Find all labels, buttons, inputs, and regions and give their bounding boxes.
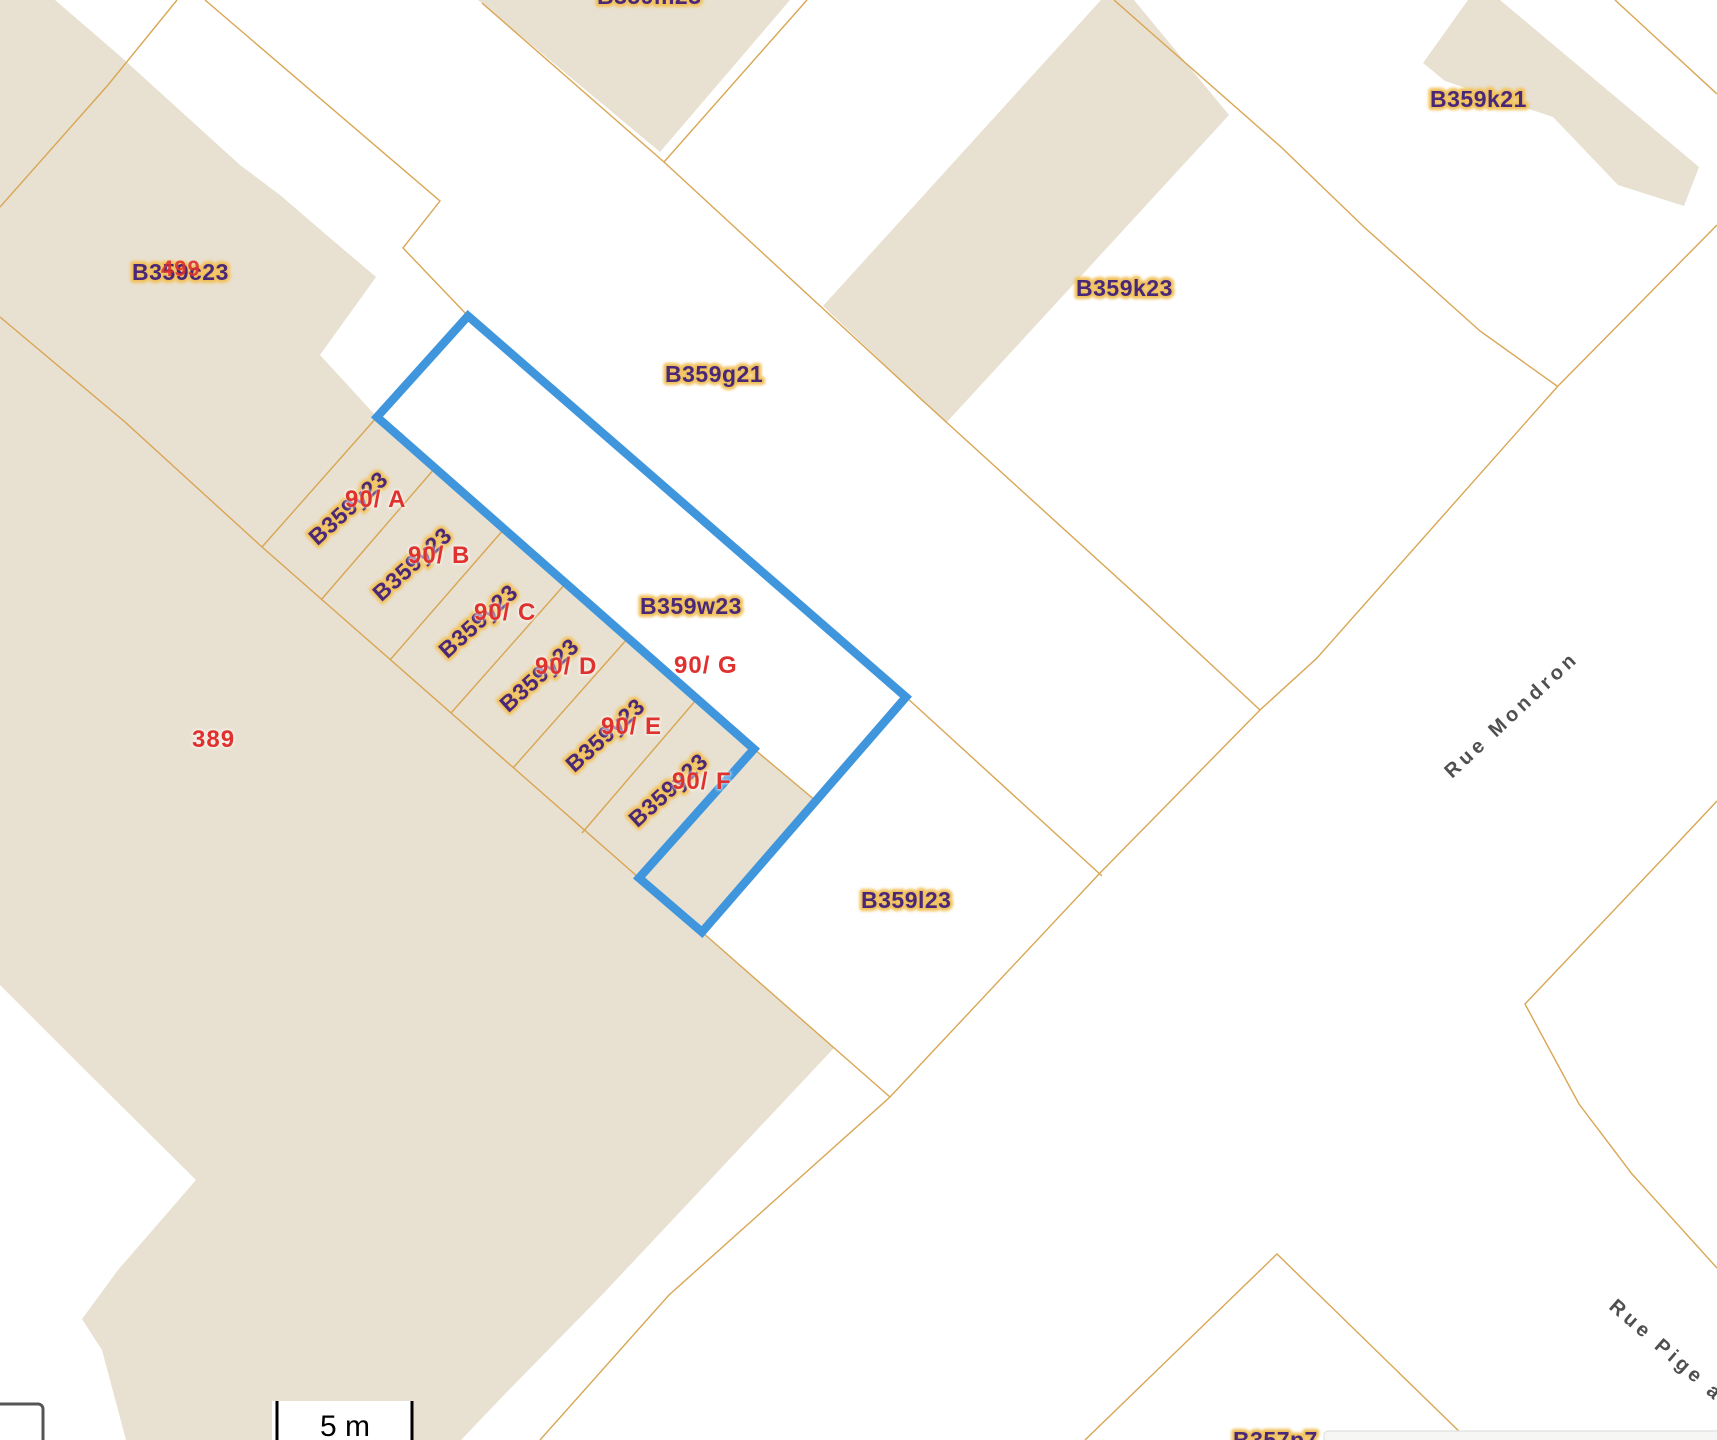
svg-text:B359k23: B359k23 (1076, 275, 1173, 301)
svg-text:90/ B: 90/ B (408, 542, 470, 569)
svg-text:90/ F: 90/ F (672, 768, 732, 795)
svg-text:499: 499 (161, 256, 201, 281)
svg-text:90/ A: 90/ A (345, 486, 406, 513)
svg-text:90/ E: 90/ E (601, 713, 662, 740)
svg-text:5 m: 5 m (320, 1410, 370, 1440)
svg-text:90/ G: 90/ G (674, 652, 738, 679)
svg-text:B359w23: B359w23 (640, 593, 742, 619)
svg-text:B359m23: B359m23 (597, 0, 702, 9)
svg-text:B357p7: B357p7 (1233, 1427, 1318, 1440)
svg-text:B359g21: B359g21 (665, 361, 763, 387)
svg-text:90/ C: 90/ C (474, 599, 536, 626)
svg-text:B359k21: B359k21 (1430, 86, 1527, 112)
svg-text:389: 389 (192, 726, 235, 753)
svg-text:B359l23: B359l23 (861, 887, 951, 913)
svg-text:90/ D: 90/ D (535, 653, 597, 680)
